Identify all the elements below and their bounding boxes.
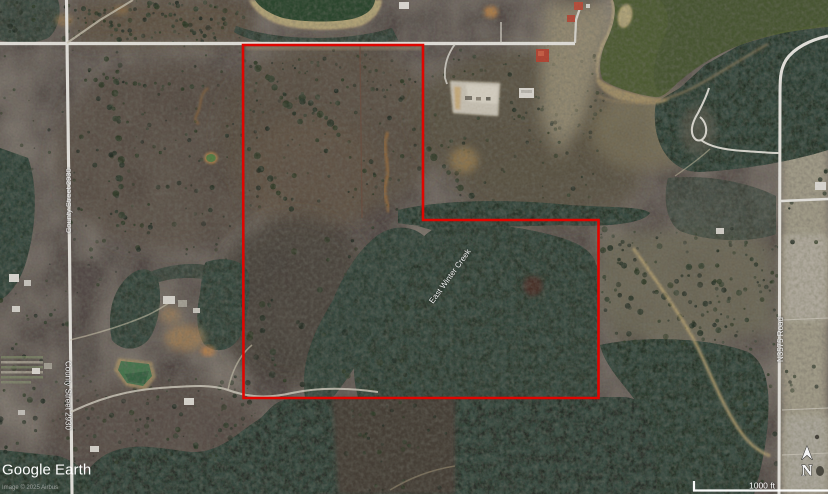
svg-text:County Street 2930: County Street 2930	[64, 168, 73, 233]
svg-text:GoogleEarth: GoogleEarth	[2, 462, 91, 479]
svg-text:N: N	[801, 463, 812, 480]
svg-text:County Street 2930: County Street 2930	[64, 361, 73, 430]
svg-text:N3575 Road: N3575 Road	[776, 317, 785, 362]
svg-text:1000 ft: 1000 ft	[749, 481, 776, 491]
svg-text:Image © 2025 Airbus: Image © 2025 Airbus	[2, 484, 58, 491]
